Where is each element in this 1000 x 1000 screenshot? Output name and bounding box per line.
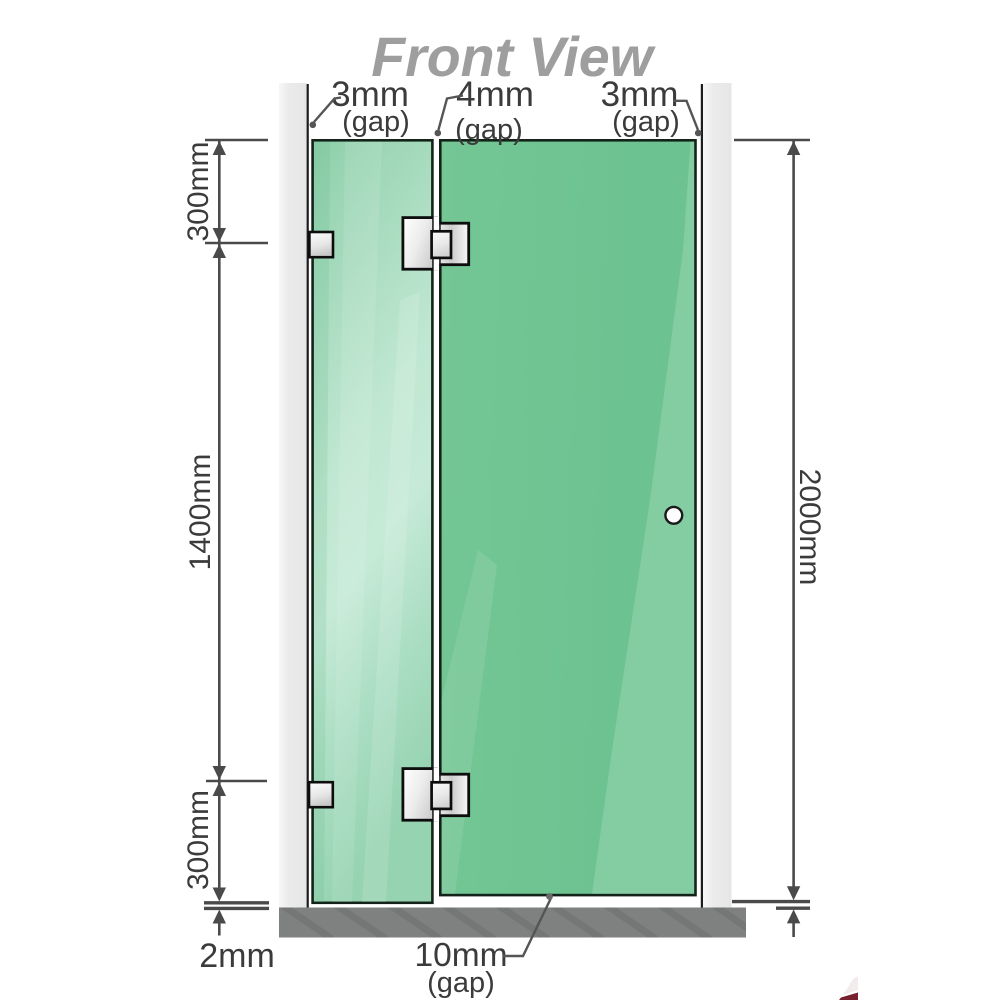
svg-text:4mm: 4mm [456, 75, 534, 114]
svg-text:(gap): (gap) [427, 967, 495, 999]
svg-text:2000mm: 2000mm [793, 469, 826, 586]
svg-text:(gap): (gap) [455, 114, 523, 146]
svg-text:300mm: 300mm [182, 790, 215, 890]
svg-text:1400mm: 1400mm [184, 454, 217, 571]
svg-text:300mm: 300mm [182, 141, 215, 241]
svg-text:2mm: 2mm [199, 937, 275, 975]
svg-text:(gap): (gap) [342, 106, 410, 138]
svg-text:(gap): (gap) [612, 106, 680, 138]
